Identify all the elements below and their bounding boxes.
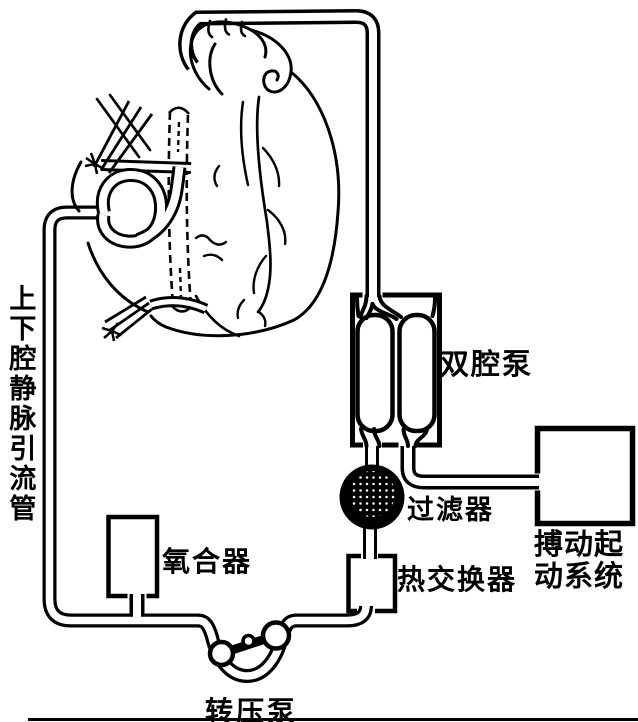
- diagram-page: 上下腔静脉引流管 双腔泵 过滤器 热交换器 搏动起动系统 氧合器 转压泵: [0, 0, 638, 722]
- label-dual-chamber-pump: 双腔泵: [440, 341, 533, 383]
- label-pulsatile-drive-system: 搏动起动系统: [534, 529, 629, 593]
- filter-sphere: [340, 465, 405, 530]
- atrium-detail: [196, 166, 226, 260]
- label-heat-exchanger: 热交换器: [397, 558, 517, 598]
- label-venous-drainage-tube: 上下腔静脉引流管: [6, 284, 34, 524]
- coronary-groove: [257, 97, 270, 312]
- oxygenator-box: [109, 517, 158, 596]
- inner-dashes: [178, 122, 181, 300]
- perfusion-circuit-diagram: [0, 0, 638, 722]
- pulsatile-system-box: [538, 429, 633, 524]
- coronary-groove-2: [241, 102, 248, 185]
- aorta-inner: [210, 44, 222, 94]
- heat-exchanger-box: [349, 556, 396, 611]
- label-filter: 过滤器: [407, 488, 494, 527]
- pulmonary-trunk: [251, 30, 291, 92]
- label-oxygenator: 氧合器: [162, 540, 252, 580]
- label-roller-pump: 转压泵: [205, 690, 298, 722]
